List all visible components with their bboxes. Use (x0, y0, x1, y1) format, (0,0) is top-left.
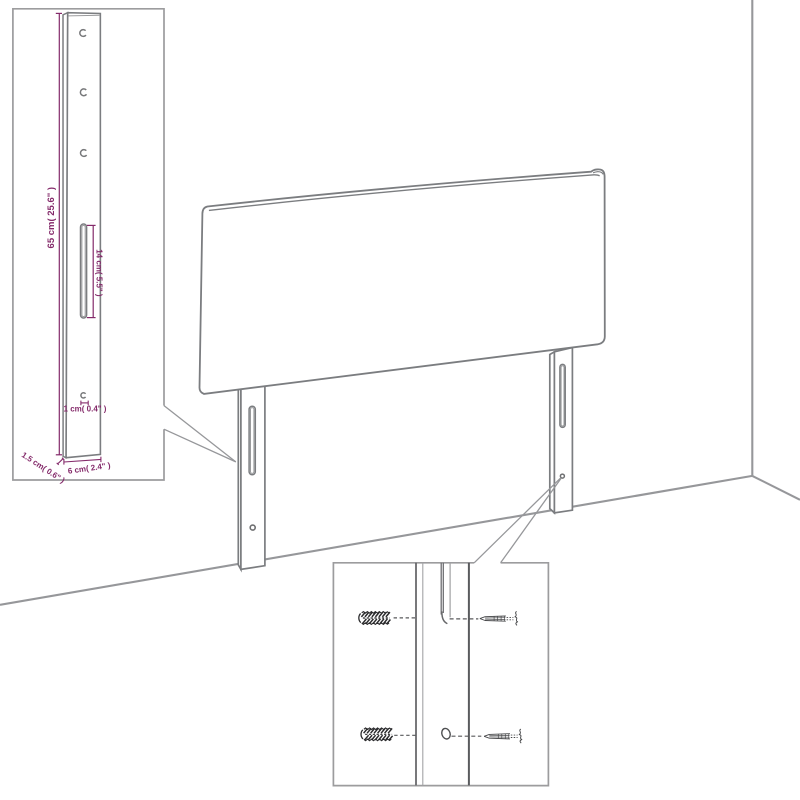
svg-text:14 cm( 5.5" ): 14 cm( 5.5" ) (95, 249, 104, 297)
svg-text:65 cm( 25.6" ): 65 cm( 25.6" ) (46, 187, 57, 249)
svg-text:1 cm( 0.4" ): 1 cm( 0.4" ) (64, 405, 107, 414)
